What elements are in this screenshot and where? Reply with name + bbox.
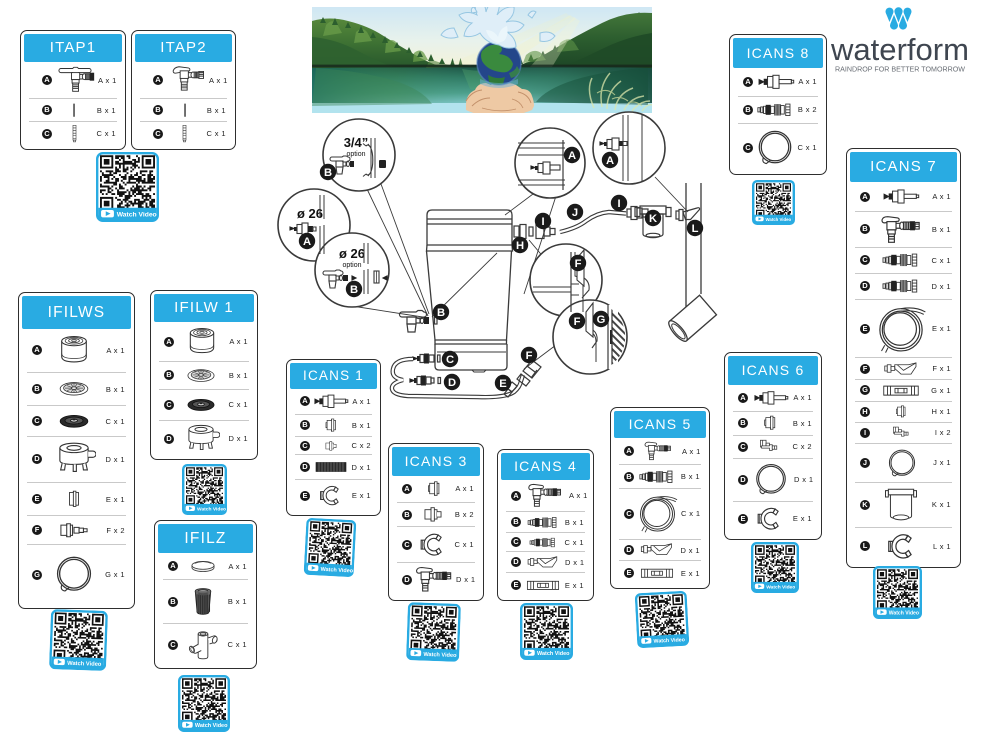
svg-text:L: L bbox=[692, 223, 699, 235]
svg-text:I: I bbox=[541, 216, 544, 228]
svg-text:B: B bbox=[350, 284, 358, 296]
svg-text:option: option bbox=[346, 151, 365, 158]
svg-text:F: F bbox=[574, 316, 581, 328]
svg-text:Watch Video: Watch Video bbox=[423, 652, 457, 659]
svg-text:ø 26: ø 26 bbox=[339, 246, 365, 261]
svg-text:waterform: waterform bbox=[830, 32, 969, 67]
svg-text:G: G bbox=[597, 314, 606, 326]
svg-text:F: F bbox=[526, 350, 533, 362]
svg-text:B: B bbox=[437, 307, 445, 319]
svg-text:Watch Video: Watch Video bbox=[67, 661, 102, 668]
svg-text:Watch Video: Watch Video bbox=[766, 217, 792, 222]
svg-text:K: K bbox=[649, 213, 657, 225]
svg-text:RAINDROP FOR BETTER TOMORROW: RAINDROP FOR BETTER TOMORROW bbox=[835, 65, 965, 74]
svg-text:ø 26: ø 26 bbox=[297, 206, 323, 221]
svg-text:A: A bbox=[606, 155, 614, 167]
svg-text:A: A bbox=[303, 236, 311, 248]
svg-text:A: A bbox=[568, 150, 576, 162]
svg-text:H: H bbox=[516, 240, 524, 252]
svg-text:B: B bbox=[324, 167, 332, 179]
svg-text:Watch Video: Watch Video bbox=[197, 507, 226, 513]
svg-text:D: D bbox=[448, 377, 456, 389]
svg-text:Watch Video: Watch Video bbox=[117, 212, 157, 219]
svg-text:Watch Video: Watch Video bbox=[195, 723, 228, 729]
svg-text:option: option bbox=[342, 262, 361, 269]
svg-text:J: J bbox=[572, 207, 578, 219]
svg-text:Watch Video: Watch Video bbox=[766, 585, 795, 591]
svg-text:Watch Video: Watch Video bbox=[889, 610, 919, 616]
svg-text:C: C bbox=[446, 354, 454, 366]
svg-text:Watch Video: Watch Video bbox=[537, 651, 570, 657]
svg-text:3/4”: 3/4” bbox=[344, 135, 369, 150]
svg-text:F: F bbox=[575, 258, 582, 270]
svg-text:I: I bbox=[617, 198, 620, 210]
svg-text:E: E bbox=[499, 378, 507, 390]
